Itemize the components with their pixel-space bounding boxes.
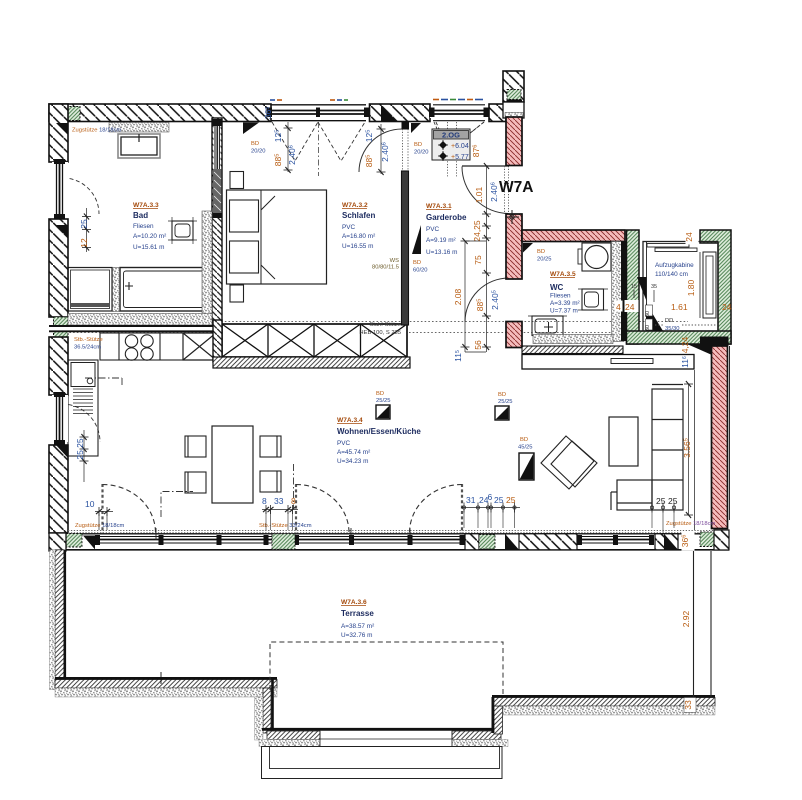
svg-text:W7A: W7A <box>499 179 533 196</box>
svg-text:25: 25 <box>668 496 678 506</box>
svg-text:6: 6 <box>488 492 493 502</box>
svg-text:1.61: 1.61 <box>671 302 688 312</box>
svg-text:Stahl-Stütze: Stahl-Stütze <box>369 322 401 328</box>
svg-text:BD: BD <box>520 437 528 443</box>
svg-text:Zugstütze 18/18cm: Zugstütze 18/18cm <box>72 128 121 134</box>
svg-text:30: 30 <box>645 325 651 331</box>
svg-text:110/140 cm: 110/140 cm <box>655 271 688 278</box>
svg-text:2.08: 2.08 <box>453 288 463 305</box>
svg-text:W7A.3.4: W7A.3.4 <box>337 417 363 424</box>
svg-text:PVC: PVC <box>342 224 356 231</box>
svg-text:25/25: 25/25 <box>498 399 513 405</box>
svg-text:8: 8 <box>262 496 267 506</box>
svg-text:W7A.3.2: W7A.3.2 <box>342 202 368 209</box>
svg-text:31: 31 <box>466 495 476 505</box>
svg-text:A=10.20 m²: A=10.20 m² <box>133 233 166 240</box>
svg-text:20/20: 20/20 <box>414 150 429 156</box>
svg-text:A=9.19 m²: A=9.19 m² <box>426 237 456 244</box>
svg-text:25/25: 25/25 <box>376 398 391 404</box>
svg-text:BD: BD <box>498 392 506 398</box>
svg-text:Fliesen: Fliesen <box>550 293 571 300</box>
svg-text:WC: WC <box>550 283 564 292</box>
svg-text:24: 24 <box>722 302 732 312</box>
svg-text:24,25: 24,25 <box>472 220 482 242</box>
svg-text:25: 25 <box>494 495 504 505</box>
svg-text:24: 24 <box>684 232 694 242</box>
svg-text:80/80/11.5: 80/80/11.5 <box>372 265 399 271</box>
svg-text:BD: BD <box>413 260 421 266</box>
svg-text:35/30: 35/30 <box>665 326 680 332</box>
svg-text:2.92: 2.92 <box>681 610 691 627</box>
svg-text:4,24: 4,24 <box>680 336 690 353</box>
svg-text:A=45.74 m²: A=45.74 m² <box>337 449 370 456</box>
svg-text:4: 4 <box>616 302 621 312</box>
svg-text:25,25: 25,25 <box>75 438 85 460</box>
svg-text:30: 30 <box>645 311 651 317</box>
svg-text:56: 56 <box>473 340 483 350</box>
svg-text:+6.04: +6.04 <box>451 143 469 150</box>
svg-text:Zugstütze 18/18cm: Zugstütze 18/18cm <box>666 521 715 527</box>
svg-text:1.01: 1.01 <box>474 186 484 203</box>
svg-text:33: 33 <box>683 700 693 710</box>
svg-text:PVC: PVC <box>426 226 440 233</box>
svg-text:60/20: 60/20 <box>413 268 428 274</box>
svg-text:24: 24 <box>625 302 635 312</box>
svg-text:U=16.55 m: U=16.55 m <box>342 243 373 250</box>
svg-text:W7A.3.3: W7A.3.3 <box>133 202 159 209</box>
svg-text:33: 33 <box>274 496 284 506</box>
svg-text:25: 25 <box>79 219 89 229</box>
svg-text:Stb.-Stütze 33/24cm: Stb.-Stütze 33/24cm <box>259 523 312 529</box>
svg-text:20/25: 20/25 <box>537 257 552 263</box>
svg-text:Schlafen: Schlafen <box>342 211 375 220</box>
svg-text:2.OG: 2.OG <box>442 131 460 140</box>
svg-text:A=3.39 m²: A=3.39 m² <box>550 300 580 307</box>
svg-text:20/20: 20/20 <box>251 149 266 155</box>
svg-text:75: 75 <box>473 255 483 265</box>
svg-text:BD: BD <box>251 141 259 147</box>
svg-text:Terrasse: Terrasse <box>341 609 374 618</box>
svg-text:12: 12 <box>79 238 89 248</box>
svg-text:WS: WS <box>390 258 399 264</box>
svg-text:A=16.80 m²: A=16.80 m² <box>342 233 375 240</box>
svg-text:Bad: Bad <box>133 211 148 220</box>
svg-text:+5.77: +5.77 <box>451 154 469 161</box>
svg-text:U=32.76 m: U=32.76 m <box>341 632 372 639</box>
svg-text:8: 8 <box>291 496 296 506</box>
svg-text:45/25: 45/25 <box>518 445 533 451</box>
svg-text:HEB 100, S 235: HEB 100, S 235 <box>359 330 401 336</box>
svg-text:Fliesen: Fliesen <box>133 223 154 230</box>
svg-text:BD: BD <box>376 391 384 397</box>
svg-text:35: 35 <box>651 284 657 290</box>
svg-text:DD: DD <box>665 318 673 324</box>
svg-text:BD: BD <box>414 142 422 148</box>
svg-text:U=15.61 m: U=15.61 m <box>133 244 164 251</box>
svg-text:PVC: PVC <box>337 440 351 447</box>
svg-text:Stb.-Stütze: Stb.-Stütze <box>74 337 103 343</box>
svg-text:W7A.3.5: W7A.3.5 <box>550 271 576 278</box>
svg-text:A=38.57 m²: A=38.57 m² <box>341 623 374 630</box>
svg-text:15: 15 <box>631 284 637 290</box>
svg-text:W7A.3.6: W7A.3.6 <box>341 599 367 606</box>
svg-text:10: 10 <box>85 499 95 509</box>
svg-text:U=34.23 m: U=34.23 m <box>337 458 368 465</box>
svg-text:Zugstütze 18/18cm: Zugstütze 18/18cm <box>75 523 124 529</box>
svg-text:Garderobe: Garderobe <box>426 213 467 222</box>
svg-text:1.80: 1.80 <box>686 279 696 296</box>
svg-text:36.5/24cm: 36.5/24cm <box>74 345 101 351</box>
svg-text:BD: BD <box>537 249 545 255</box>
svg-text:Wohnen/Essen/Küche: Wohnen/Essen/Küche <box>337 427 421 436</box>
svg-text:U=7.37 m: U=7.37 m <box>550 308 578 315</box>
svg-text:W7A.3.1: W7A.3.1 <box>426 203 452 210</box>
svg-text:25: 25 <box>656 496 666 506</box>
svg-text:Aufzugkabine: Aufzugkabine <box>655 262 694 269</box>
svg-text:U=13.16 m: U=13.16 m <box>426 249 457 256</box>
